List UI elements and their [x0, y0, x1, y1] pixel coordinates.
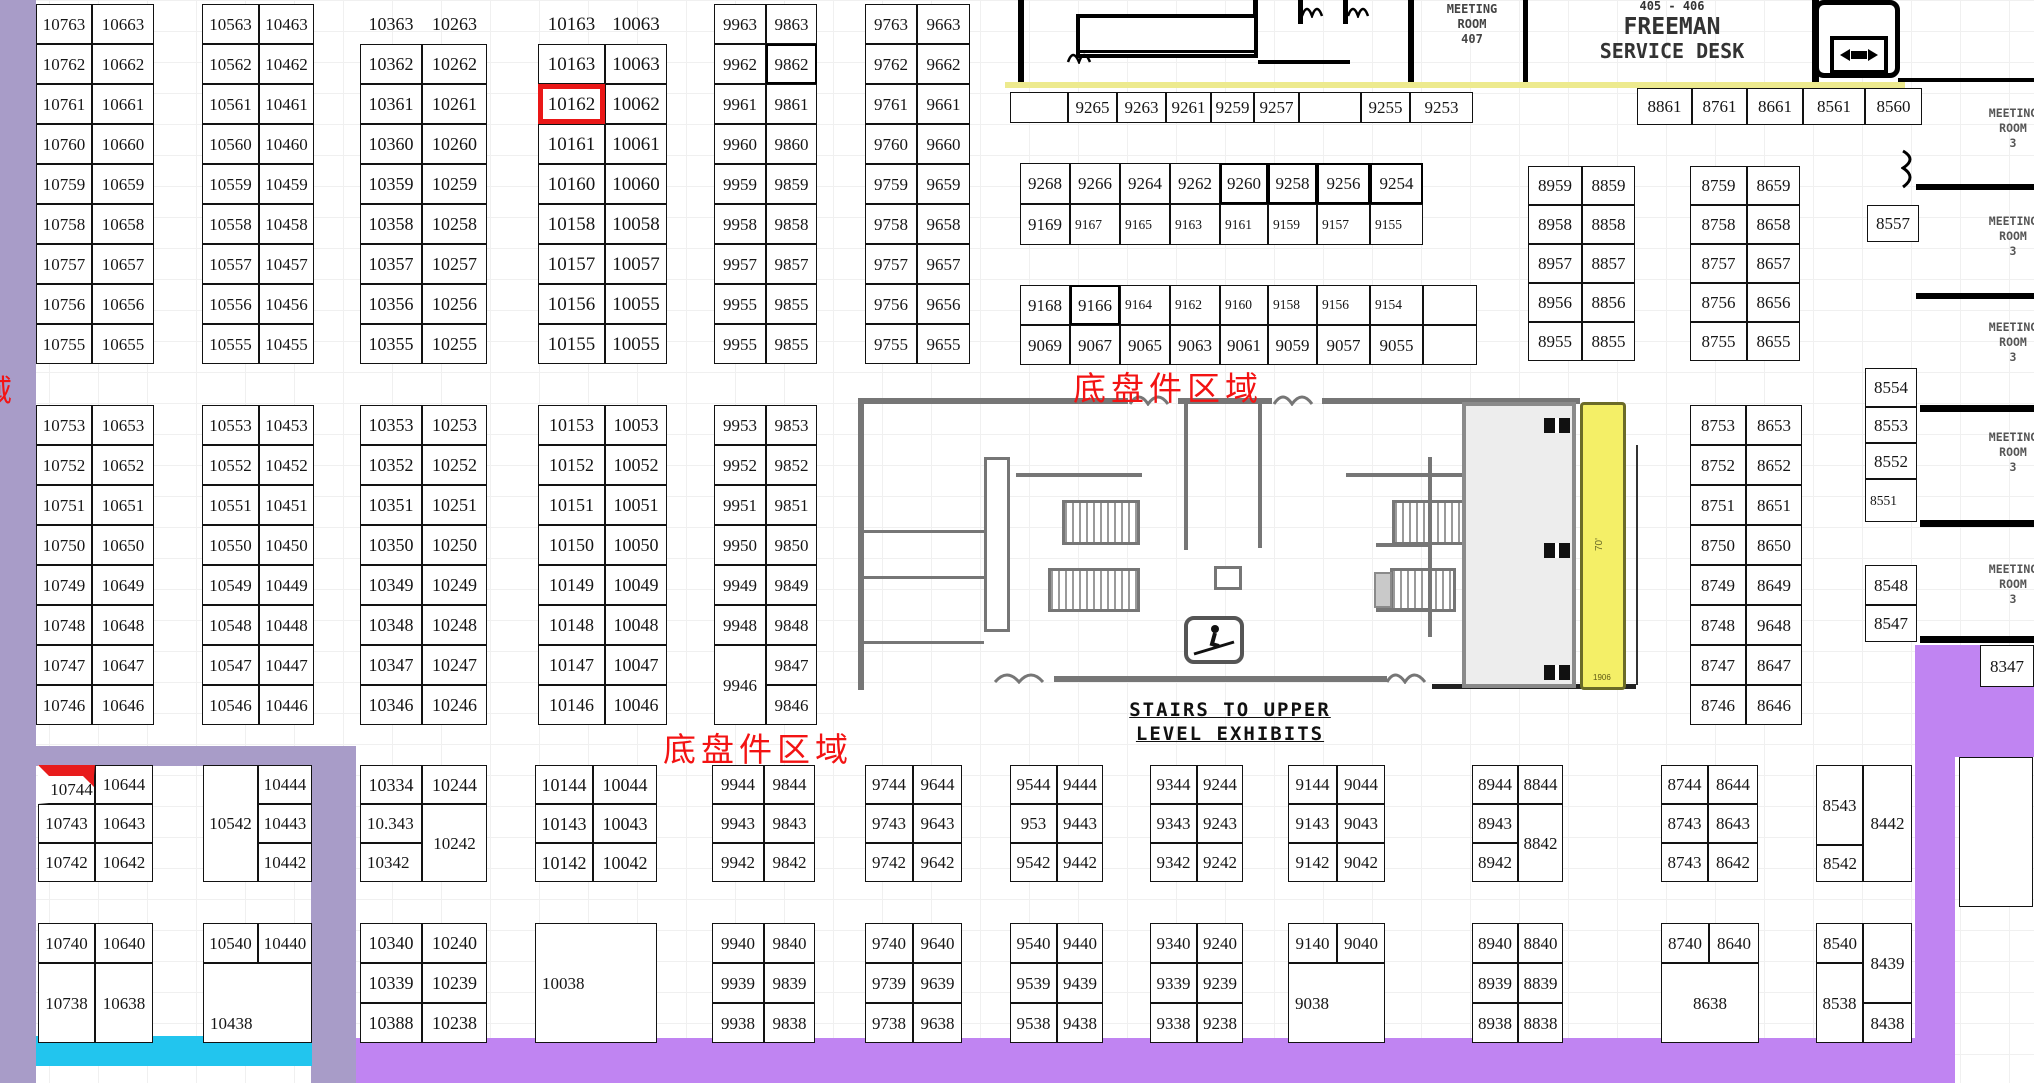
booth-cell-10257: 10257 [422, 244, 487, 284]
building-wall [1376, 608, 1430, 612]
booth-cell-8347: 8347 [1980, 645, 2034, 687]
booth-cell-10240: 10240 [422, 923, 487, 963]
booth-cell-9263: 9263 [1117, 92, 1166, 123]
booth-cell-8943: 8943 [1472, 804, 1518, 843]
booth-cell-10556: 10556 [202, 284, 259, 324]
booth-cell-10355: 10355 [360, 324, 422, 364]
booth-cell-10661: 10661 [92, 84, 154, 124]
booth-cell-8540: 8540 [1816, 923, 1863, 963]
booth-cell-9242: 9242 [1197, 843, 1243, 882]
booth-cell-9443: 9443 [1057, 804, 1103, 843]
booth-cell-10462: 10462 [259, 44, 314, 84]
booth-cell-8655: 8655 [1747, 322, 1800, 361]
booth-cell-9253: 9253 [1410, 92, 1473, 123]
booth-cell-10640: 10640 [95, 923, 153, 963]
booth-cell-8538: 8538 [1816, 963, 1863, 1043]
booth-cell-8944: 8944 [1472, 765, 1518, 804]
booth-cell-8543: 8543 [1816, 765, 1863, 845]
booth-cell-9744: 9744 [865, 765, 913, 804]
booth-cell-8547: 8547 [1865, 605, 1917, 642]
booth-cell-10542: 10542 [203, 765, 258, 882]
booth-cell-9656: 9656 [917, 284, 970, 324]
booth-cell-10648: 10648 [92, 605, 154, 645]
booth-cell-10153: 10153 [538, 405, 605, 445]
booth-cell-9442: 9442 [1057, 843, 1103, 882]
booth-cell-8752: 8752 [1690, 445, 1746, 485]
booth-cell-10353: 10353 [360, 405, 422, 445]
booth-cell-9758: 9758 [865, 204, 917, 244]
booth-cell-10642: 10642 [95, 843, 153, 882]
booth-cell-10148: 10148 [538, 605, 605, 645]
empty-cell [1959, 757, 2033, 907]
booth-cell-10334: 10334 [360, 765, 422, 804]
booth-cell-9662: 9662 [917, 44, 970, 84]
booth-cell-10149: 10149 [538, 565, 605, 605]
booth-cell-10158: 10158 [538, 204, 605, 244]
left-lavender-band [0, 0, 36, 1083]
booth-cell-9757: 9757 [865, 244, 917, 284]
booth-cell-10657: 10657 [92, 244, 154, 284]
booth-cell-8856: 8856 [1582, 283, 1635, 322]
booth-cell-10163: 10163 [538, 44, 605, 84]
booth-cell-9240: 9240 [1197, 923, 1243, 963]
exhibit-floor-plan: 70' 1906 底盘件区域 底盘件区域 域 STAIRS TO UPPER L… [0, 0, 2034, 1083]
booth-cell-10755: 10755 [36, 324, 92, 364]
booth-cell-9740: 9740 [865, 923, 913, 963]
booth-cell-10548: 10548 [202, 605, 259, 645]
meeting-room-side-line: 3 [1948, 350, 2034, 365]
booth-cell-9657: 9657 [917, 244, 970, 284]
booth-cell-9859: 9859 [766, 164, 817, 204]
booth-cell-10360: 10360 [360, 124, 422, 164]
booth-cell-9259: 9259 [1211, 92, 1254, 123]
booth-cell-9963: 9963 [714, 4, 766, 44]
meeting-room-side-label: MEETINGROOM3 [1948, 320, 2034, 365]
booth-cell-9156: 9156 [1317, 285, 1370, 325]
booth-cell-10659: 10659 [92, 164, 154, 204]
booth-cell-10456: 10456 [259, 284, 314, 324]
booth-cell-9761: 9761 [865, 84, 917, 124]
booth-cell-10261: 10261 [422, 84, 487, 124]
booth-cell-8548: 8548 [1865, 565, 1917, 605]
double-door-icon [1544, 665, 1570, 680]
booth-cell-10239: 10239 [422, 963, 487, 1003]
booth-cell-10450: 10450 [259, 525, 314, 565]
meeting-room-side-label: MEETINGROOM3 [1948, 106, 2034, 151]
meeting-room-side-line: 3 [1948, 136, 2034, 151]
booth-cell-10252: 10252 [422, 445, 487, 485]
booth-cell-8844: 8844 [1518, 765, 1563, 804]
booth-cell-8746: 8746 [1690, 685, 1746, 725]
booth-cell-8551: 8551 [1865, 479, 1917, 522]
booth-cell-10746: 10746 [36, 685, 92, 725]
booth-cell-9958: 9958 [714, 204, 766, 244]
booth-cell-10557: 10557 [202, 244, 259, 284]
booth-cell-9638: 9638 [913, 1003, 962, 1043]
booth-cell-9962: 9962 [714, 44, 766, 84]
zone-label-lower: 底盘件区域 [663, 723, 853, 771]
booth-cell-9340: 9340 [1150, 923, 1197, 963]
arrow-left-icon [1840, 49, 1850, 61]
freeman-service-desk-label: 405 - 406 FREEMAN SERVICE DESK [1540, 0, 1804, 63]
booth-cell-10650: 10650 [92, 525, 154, 565]
booth-cell-8743: 8743 [1661, 843, 1708, 882]
mr407-line-3: 407 [1416, 32, 1528, 47]
booth-cell-10463: 10463 [259, 4, 314, 44]
booth-cell-9839: 9839 [764, 963, 815, 1003]
booth-cell-8740: 8740 [1661, 923, 1709, 963]
right-purple-band-c [1915, 757, 1955, 1083]
zone-label-upper: 底盘件区域 [1073, 362, 1263, 410]
stairs-label: STAIRS TO UPPER LEVEL EXHIBITS [1075, 699, 1385, 747]
booth-cell-9256: 9256 [1317, 163, 1370, 204]
booth-cell-9961: 9961 [714, 84, 766, 124]
meeting-room-side-label: MEETINGROOM3 [1948, 214, 2034, 259]
booth-cell-10162: 10162 [538, 84, 605, 124]
building-wall [1636, 445, 1638, 685]
booth-cell-9738: 9738 [865, 1003, 913, 1043]
aisle-lavender-band-horizontal [0, 746, 356, 766]
booth-cell-9661: 9661 [917, 84, 970, 124]
booth-cell-9258: 9258 [1268, 163, 1317, 204]
booth-cell-9343: 9343 [1150, 804, 1197, 843]
booth-cell-10453: 10453 [259, 405, 314, 445]
booth-cell-9540: 9540 [1010, 923, 1057, 963]
booth-cell-9444: 9444 [1057, 765, 1103, 804]
booth-cell-10646: 10646 [92, 685, 154, 725]
booth-cell-9342: 9342 [1150, 843, 1197, 882]
booth-cell-9239: 9239 [1197, 963, 1243, 1003]
booth-cell-8955: 8955 [1528, 322, 1582, 361]
booth-cell-10146: 10146 [538, 685, 605, 725]
empty-cell [1010, 92, 1068, 123]
booth-cell-8857: 8857 [1582, 244, 1635, 283]
booth-cell-9440: 9440 [1057, 923, 1103, 963]
booth-cell-8650: 8650 [1746, 525, 1802, 565]
booth-cell-9942: 9942 [712, 843, 764, 882]
booth-cell-8757: 8757 [1690, 244, 1747, 283]
aisle-lavender-band-vertical [311, 746, 356, 1083]
wall-segment [1916, 293, 2034, 299]
booth-cell-10347: 10347 [360, 645, 422, 685]
booth-cell-9861: 9861 [766, 84, 817, 124]
building-wall [864, 576, 984, 579]
empty-cell [1423, 285, 1477, 325]
booth-cell-9155: 9155 [1370, 204, 1423, 245]
meeting-room-side-label: MEETINGROOM3 [1948, 430, 2034, 475]
booth-cell-8657: 8657 [1747, 244, 1800, 283]
booth-cell-8642: 8642 [1708, 843, 1758, 882]
booth-cell-8839: 8839 [1518, 963, 1563, 1003]
booth-cell-10763: 10763 [36, 4, 92, 44]
clipped-edge-label: 域 [0, 366, 12, 410]
booth-cell-9949: 9949 [714, 565, 766, 605]
stairs-line-2: LEVEL EXHIBITS [1075, 723, 1385, 747]
booth-cell-9642: 9642 [913, 843, 962, 882]
booth-cell-10063: 10063 [605, 44, 667, 84]
booth-cell-10259: 10259 [422, 164, 487, 204]
booth-cell-9038: 9038 [1288, 963, 1385, 1043]
booth-cell-8647: 8647 [1746, 645, 1802, 685]
booth-cell-10342: 10342 [360, 843, 422, 882]
booth-cell-8557: 8557 [1867, 205, 1919, 242]
booth-cell-10655: 10655 [92, 324, 154, 364]
booth-cell-9165: 9165 [1120, 204, 1170, 245]
stairs-hatch [1062, 500, 1140, 545]
booth-cell-8753: 8753 [1690, 405, 1746, 445]
booth-cell-10743: 10743 [38, 804, 95, 843]
walkway-icon [1830, 36, 1888, 74]
booth-cell-9655: 9655 [917, 324, 970, 364]
booth-cell-10256: 10256 [422, 284, 487, 324]
booth-cell-9951: 9951 [714, 485, 766, 525]
booth-cell-9162: 9162 [1170, 285, 1220, 325]
meeting-room-side-line: ROOM [1948, 577, 2034, 592]
booth-cell-9847: 9847 [766, 645, 817, 685]
booth-cell-10753: 10753 [36, 405, 92, 445]
booth-cell-10.343: 10.343 [360, 804, 422, 843]
stairs-hatch [1390, 568, 1456, 612]
booth-cell-9542: 9542 [1010, 843, 1057, 882]
booth-cell-9344: 9344 [1150, 765, 1197, 804]
meeting-room-side-line: 3 [1948, 244, 2034, 259]
booth-cell-9439: 9439 [1057, 963, 1103, 1003]
booth-cell-10244: 10244 [422, 765, 487, 804]
booth-cell-9838: 9838 [764, 1003, 815, 1043]
booth-cell-10460: 10460 [259, 124, 314, 164]
booth-cell-9843: 9843 [764, 804, 815, 843]
booth-cell-8643: 8643 [1708, 804, 1758, 843]
booth-cell-10752: 10752 [36, 445, 92, 485]
booth-cell-10742: 10742 [38, 843, 95, 882]
booth-cell-8749: 8749 [1690, 565, 1746, 605]
right-purple-band-a [1915, 645, 1980, 689]
booth-cell-9057: 9057 [1317, 325, 1370, 365]
booth-cell-10558: 10558 [202, 204, 259, 244]
booth-cell-10339: 10339 [360, 963, 422, 1003]
booth-cell-9339: 9339 [1150, 963, 1197, 1003]
booth-cell-8958: 8958 [1528, 205, 1582, 244]
booth-cell-10255: 10255 [422, 324, 487, 364]
meeting-room-side-line: ROOM [1948, 335, 2034, 350]
booth-cell-9756: 9756 [865, 284, 917, 324]
booth-cell-10150: 10150 [538, 525, 605, 565]
freeman-desk-line: SERVICE DESK [1540, 40, 1804, 63]
booth-cell-9268: 9268 [1020, 163, 1070, 204]
meeting-room-side-line: ROOM [1948, 445, 2034, 460]
booth-cell-10643: 10643 [95, 804, 153, 843]
booth-cell-10758: 10758 [36, 204, 92, 244]
double-door-icon [1544, 543, 1570, 558]
booth-cell-8938: 8938 [1472, 1003, 1518, 1043]
booth-cell-10352: 10352 [360, 445, 422, 485]
booth-cell-8554: 8554 [1865, 368, 1917, 407]
booth-cell-9257: 9257 [1254, 92, 1299, 123]
booth-cell-9658: 9658 [917, 204, 970, 244]
booth-cell-9840: 9840 [764, 923, 815, 963]
booth-cell-10263: 10263 [422, 4, 487, 44]
booth-cell-9544: 9544 [1010, 765, 1057, 804]
booth-cell-10443: 10443 [258, 804, 312, 843]
booth-cell-10549: 10549 [202, 565, 259, 605]
meeting-room-side-line: MEETING [1948, 320, 2034, 335]
booth-cell-9144: 9144 [1288, 765, 1337, 804]
booth-cell-10361: 10361 [360, 84, 422, 124]
booth-cell-10055: 10055 [605, 284, 667, 324]
booth-cell-10358: 10358 [360, 204, 422, 244]
strip-width-label: 70' [1594, 538, 1605, 551]
booth-cell-8561: 8561 [1803, 88, 1865, 125]
booth-cell-9042: 9042 [1337, 843, 1385, 882]
booth-cell-9953: 9953 [714, 405, 766, 445]
booth-cell-10152: 10152 [538, 445, 605, 485]
booth-cell-10248: 10248 [422, 605, 487, 645]
booth-cell-10251: 10251 [422, 485, 487, 525]
booth-cell-9957: 9957 [714, 244, 766, 284]
bottom-purple-band [356, 1038, 1915, 1083]
booth-cell-10760: 10760 [36, 124, 92, 164]
booth-cell-9950: 9950 [714, 525, 766, 565]
booth-cell-10057: 10057 [605, 244, 667, 284]
door-squiggle-icon [1300, 2, 1324, 18]
booth-cell-10157: 10157 [538, 244, 605, 284]
booth-cell-8840: 8840 [1518, 923, 1563, 963]
booth-cell-10048: 10048 [605, 605, 667, 645]
booth-cell-9159: 9159 [1268, 204, 1317, 245]
booth-cell-9238: 9238 [1197, 1003, 1243, 1043]
empty-cell [1423, 325, 1477, 365]
booth-cell-9846: 9846 [766, 685, 817, 725]
booth-cell-10357: 10357 [360, 244, 422, 284]
booth-cell-9255: 9255 [1361, 92, 1410, 123]
booth-cell-9644: 9644 [913, 765, 962, 804]
booth-cell-10058: 10058 [605, 204, 667, 244]
booth-cell-9952: 9952 [714, 445, 766, 485]
booth-cell-9040: 9040 [1337, 923, 1385, 963]
booth-cell-9063: 9063 [1170, 325, 1220, 365]
booth-cell-10762: 10762 [36, 44, 92, 84]
booth-cell-10062: 10062 [605, 84, 667, 124]
booth-cell-10756: 10756 [36, 284, 92, 324]
booth-cell-10663: 10663 [92, 4, 154, 44]
booth-cell-9261: 9261 [1166, 92, 1211, 123]
booth-cell-10751: 10751 [36, 485, 92, 525]
wall-segment [1920, 636, 2034, 643]
meeting-room-side-line: MEETING [1948, 562, 2034, 577]
booth-cell-9265: 9265 [1068, 92, 1117, 123]
booth-cell-10063: 10063 [605, 4, 667, 44]
building-wall [858, 398, 864, 690]
booth-cell-10444: 10444 [258, 765, 312, 804]
booth-cell-9955: 9955 [714, 324, 766, 364]
mr407-line-1: MEETING [1416, 2, 1528, 17]
booth-cell-10761: 10761 [36, 84, 92, 124]
booth-cell-9059: 9059 [1268, 325, 1317, 365]
booth-cell-10052: 10052 [605, 445, 667, 485]
booth-cell-10550: 10550 [202, 525, 259, 565]
empty-cell [1299, 92, 1361, 123]
booth-cell-10455: 10455 [259, 324, 314, 364]
booth-cell-10143: 10143 [535, 804, 593, 843]
meeting-room-side-line: MEETING [1948, 430, 2034, 445]
building-wall [1376, 543, 1430, 547]
booth-cell-8942: 8942 [1472, 843, 1518, 882]
booth-cell-10351: 10351 [360, 485, 422, 525]
booth-cell-8442: 8442 [1863, 765, 1912, 882]
booth-cell-10540: 10540 [203, 923, 258, 963]
wall-segment [1898, 78, 2034, 82]
booth-cell-9044: 9044 [1337, 765, 1385, 804]
building-wall [864, 641, 984, 644]
stairs-line-1: STAIRS TO UPPER [1075, 699, 1385, 723]
booth-cell-8644: 8644 [1708, 765, 1758, 804]
booth-cell-10340: 10340 [360, 923, 422, 963]
booth-cell-10563: 10563 [202, 4, 259, 44]
booth-cell-10055: 10055 [605, 324, 667, 364]
booth-cell-10738: 10738 [38, 963, 95, 1043]
booth-cell-10156: 10156 [538, 284, 605, 324]
booth-cell-10388: 10388 [360, 1003, 422, 1043]
booth-cell-10560: 10560 [202, 124, 259, 164]
wall-segment [1258, 60, 1350, 64]
booth-cell-8651: 8651 [1746, 485, 1802, 525]
booth-cell-9862: 9862 [766, 44, 817, 84]
booth-cell-9659: 9659 [917, 164, 970, 204]
booth-cell-8560: 8560 [1865, 88, 1922, 125]
booth-cell-9061: 9061 [1220, 325, 1268, 365]
booth-cell-10260: 10260 [422, 124, 487, 164]
booth-cell-10053: 10053 [605, 405, 667, 445]
booth-cell-8858: 8858 [1582, 205, 1635, 244]
booth-cell-10043: 10043 [593, 804, 657, 843]
meeting-room-side-line: MEETING [1948, 106, 2034, 121]
freeman-name-line: FREEMAN [1540, 14, 1804, 40]
booth-cell-8553: 8553 [1865, 407, 1917, 443]
booth-cell-9860: 9860 [766, 124, 817, 164]
booth-cell-10647: 10647 [92, 645, 154, 685]
booth-cell-8861: 8861 [1637, 88, 1692, 125]
door-squiggle-icon [1385, 668, 1431, 684]
booth-cell-10042: 10042 [593, 843, 657, 882]
booth-cell-10658: 10658 [92, 204, 154, 244]
booth-cell-10546: 10546 [202, 685, 259, 725]
booth-cell-10656: 10656 [92, 284, 154, 324]
booth-cell-10553: 10553 [202, 405, 259, 445]
booth-cell-10363: 10363 [360, 4, 422, 44]
booth-cell-10147: 10147 [538, 645, 605, 685]
booth-cell-10652: 10652 [92, 445, 154, 485]
booth-cell-10644: 10644 [95, 765, 153, 804]
booth-cell-9169: 9169 [1020, 204, 1070, 245]
booth-cell-9858: 9858 [766, 204, 817, 244]
booth-cell-9855: 9855 [766, 284, 817, 324]
strip-tag-label: 1906 [1593, 673, 1611, 682]
booth-cell-10438: 10438 [203, 963, 312, 1043]
booth-cell-8640: 8640 [1709, 923, 1759, 963]
booth-cell-10047: 10047 [605, 645, 667, 685]
booth-cell-8659: 8659 [1747, 166, 1800, 205]
booth-cell-10249: 10249 [422, 565, 487, 605]
booth-cell-9254: 9254 [1370, 163, 1423, 204]
booth-cell-9338: 9338 [1150, 1003, 1197, 1043]
booth-cell-10744: 10744 [38, 765, 95, 804]
booth-cell-10060: 10060 [605, 164, 667, 204]
booth-cell-9848: 9848 [766, 605, 817, 645]
booth-cell-10552: 10552 [202, 445, 259, 485]
booth-cell-9943: 9943 [712, 804, 764, 843]
booth-cell-9538: 9538 [1010, 1003, 1057, 1043]
booth-cell-10446: 10446 [259, 685, 314, 725]
